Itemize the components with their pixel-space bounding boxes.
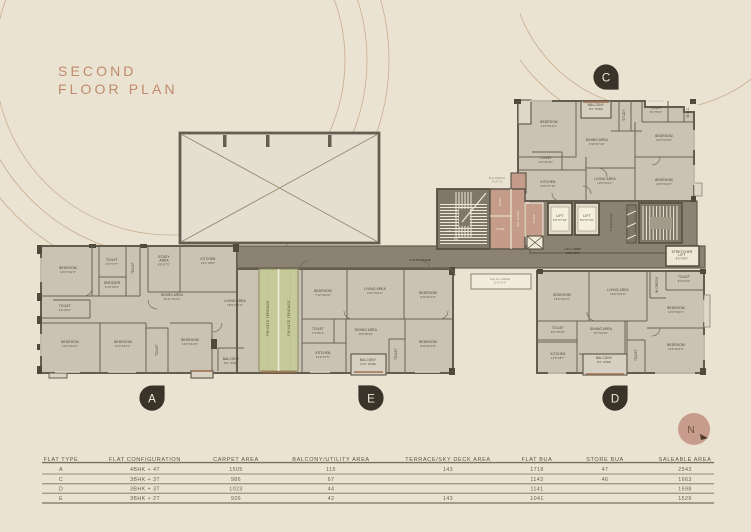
svg-text:1141: 1141 xyxy=(530,487,543,493)
svg-text:BEDROOM9'10"X10'9": BEDROOM9'10"X10'9" xyxy=(419,340,437,348)
svg-text:BEDROOM11'0"X12'1": BEDROOM11'0"X12'1" xyxy=(114,340,132,348)
svg-text:TOILET7'6"X6'1": TOILET7'6"X6'1" xyxy=(312,327,325,335)
svg-text:3BHK + 2T: 3BHK + 2T xyxy=(130,496,160,502)
svg-text:STUDY: STUDY xyxy=(622,109,626,121)
svg-text:KITCHEN11'6"X8'7": KITCHEN11'6"X8'7" xyxy=(550,352,566,360)
svg-text:BEDROOM11'6"X12'6": BEDROOM11'6"X12'6" xyxy=(667,343,685,351)
svg-text:E: E xyxy=(367,393,375,405)
svg-text:KITCHEN12'1"X8'9": KITCHEN12'1"X8'9" xyxy=(200,257,216,265)
svg-text:STUDYAREA6'9"X7'5": STUDYAREA6'9"X7'5" xyxy=(158,255,171,266)
svg-text:N: N xyxy=(687,425,694,436)
svg-text:PRIVATE TERRACE: PRIVATE TERRACE xyxy=(287,300,291,336)
svg-text:FLOOR PLAN: FLOOR PLAN xyxy=(58,81,178,97)
svg-text:KITCHEN11'0"X7'5": KITCHEN11'0"X7'5" xyxy=(315,351,331,359)
svg-text:TOILET6'2"X6'11": TOILET6'2"X6'11" xyxy=(539,156,553,164)
svg-text:BEDROOM10'0"X11'0": BEDROOM10'0"X11'0" xyxy=(655,178,673,186)
svg-text:KITCHEN10'6"X7'11": KITCHEN10'6"X7'11" xyxy=(540,180,556,188)
svg-text:47: 47 xyxy=(602,467,609,473)
svg-text:46: 46 xyxy=(602,477,609,483)
svg-text:BALCONY8'6" WIDE: BALCONY8'6" WIDE xyxy=(588,103,605,111)
svg-text:926: 926 xyxy=(231,496,241,502)
svg-text:1663: 1663 xyxy=(678,477,692,483)
svg-text:3BHK + 3T: 3BHK + 3T xyxy=(130,487,160,493)
svg-text:5' W PASSAGE: 5' W PASSAGE xyxy=(609,213,613,231)
svg-text:BEDROOM7'10"X10'0": BEDROOM7'10"X10'0" xyxy=(314,289,332,297)
svg-text:1041: 1041 xyxy=(530,496,544,502)
svg-text:42: 42 xyxy=(328,496,335,502)
svg-text:BEDROOM9'10"X10'0": BEDROOM9'10"X10'0" xyxy=(419,291,437,299)
svg-text:TOILET4'6"X6'2": TOILET4'6"X6'2" xyxy=(59,304,72,312)
svg-text:BEDROOM10'0"X10'0": BEDROOM10'0"X10'0" xyxy=(655,134,673,142)
svg-text:TOILET: TOILET xyxy=(634,349,638,361)
svg-text:M.E.C.: M.E.C. xyxy=(686,107,690,118)
svg-text:DRESSER5'10"X3'9": DRESSER5'10"X3'9" xyxy=(104,281,121,289)
svg-text:BALCONY9'0" WIDE: BALCONY9'0" WIDE xyxy=(223,357,240,365)
svg-text:D: D xyxy=(59,487,63,493)
svg-text:TOILET: TOILET xyxy=(155,344,159,356)
svg-text:A: A xyxy=(59,467,63,473)
svg-text:UP: UP xyxy=(447,229,451,233)
svg-text:BEDROOM10'0"X12'6": BEDROOM10'0"X12'6" xyxy=(181,338,199,346)
svg-text:A: A xyxy=(148,394,156,406)
svg-text:D: D xyxy=(611,394,619,406)
svg-text:143: 143 xyxy=(443,467,453,473)
svg-text:E: E xyxy=(59,496,63,502)
svg-text:67: 67 xyxy=(328,477,335,483)
svg-text:44: 44 xyxy=(328,487,335,493)
svg-text:PRIVATE TERRACE: PRIVATE TERRACE xyxy=(266,300,270,336)
svg-text:BEDROOM10'0"X14'0": BEDROOM10'0"X14'0" xyxy=(540,120,558,128)
svg-text:115: 115 xyxy=(326,467,336,473)
svg-text:DN: DN xyxy=(454,237,458,241)
svg-text:C: C xyxy=(59,477,63,483)
svg-text:143: 143 xyxy=(443,496,453,502)
svg-text:1143: 1143 xyxy=(530,477,543,483)
svg-text:BEDROOM13'0"X10'0": BEDROOM13'0"X10'0" xyxy=(667,306,685,314)
svg-text:TOILET: TOILET xyxy=(394,348,398,360)
svg-text:LIFT LOBBY10'0"X9'2": LIFT LOBBY10'0"X9'2" xyxy=(564,247,581,255)
svg-text:6' W PASSAGE: 6' W PASSAGE xyxy=(409,258,431,262)
svg-text:BALCONY6'6" WIDE: BALCONY6'6" WIDE xyxy=(596,356,613,364)
svg-text:TOILET: TOILET xyxy=(131,262,135,274)
svg-text:BEDROOM13'6"X12'6": BEDROOM13'6"X12'6" xyxy=(553,293,571,301)
svg-text:TOILET8'0"X4'9": TOILET8'0"X4'9" xyxy=(678,275,691,283)
svg-text:4BHK + 4T: 4BHK + 4T xyxy=(130,467,160,473)
svg-text:W.M. PAILER: W.M. PAILER xyxy=(516,211,520,227)
svg-text:1023: 1023 xyxy=(229,487,243,493)
svg-text:TOILET: TOILET xyxy=(498,197,502,206)
svg-text:STORE: STORE xyxy=(496,227,505,231)
svg-text:1598: 1598 xyxy=(678,487,692,493)
svg-text:BEDROOM14'6"X11'0": BEDROOM14'6"X11'0" xyxy=(59,266,77,274)
svg-text:STORE: STORE xyxy=(532,214,536,223)
svg-text:3BHK + 3T: 3BHK + 3T xyxy=(130,477,160,483)
svg-text:1505: 1505 xyxy=(229,467,243,473)
svg-text:1718: 1718 xyxy=(530,467,544,473)
svg-text:986: 986 xyxy=(231,477,241,483)
svg-text:TOILET6'0"X5'4": TOILET6'0"X5'4" xyxy=(650,106,663,114)
svg-text:DINING AREA15'11"X11'0": DINING AREA15'11"X11'0" xyxy=(161,293,184,301)
svg-text:TOILET4'6"X7'7": TOILET4'6"X7'7" xyxy=(106,258,119,266)
svg-text:SECOND: SECOND xyxy=(58,63,137,79)
svg-text:TOILET8'2"X8'10": TOILET8'2"X8'10" xyxy=(551,326,565,334)
svg-text:2543: 2543 xyxy=(678,467,692,473)
svg-text:BALCONY13'0" WIDE: BALCONY13'0" WIDE xyxy=(360,358,377,366)
svg-text:1529: 1529 xyxy=(678,496,692,502)
svg-text:BEDROOM14'0"X11'0": BEDROOM14'0"X11'0" xyxy=(61,340,79,348)
svg-text:C: C xyxy=(602,73,610,85)
svg-text:IN DRESS: IN DRESS xyxy=(655,277,659,293)
